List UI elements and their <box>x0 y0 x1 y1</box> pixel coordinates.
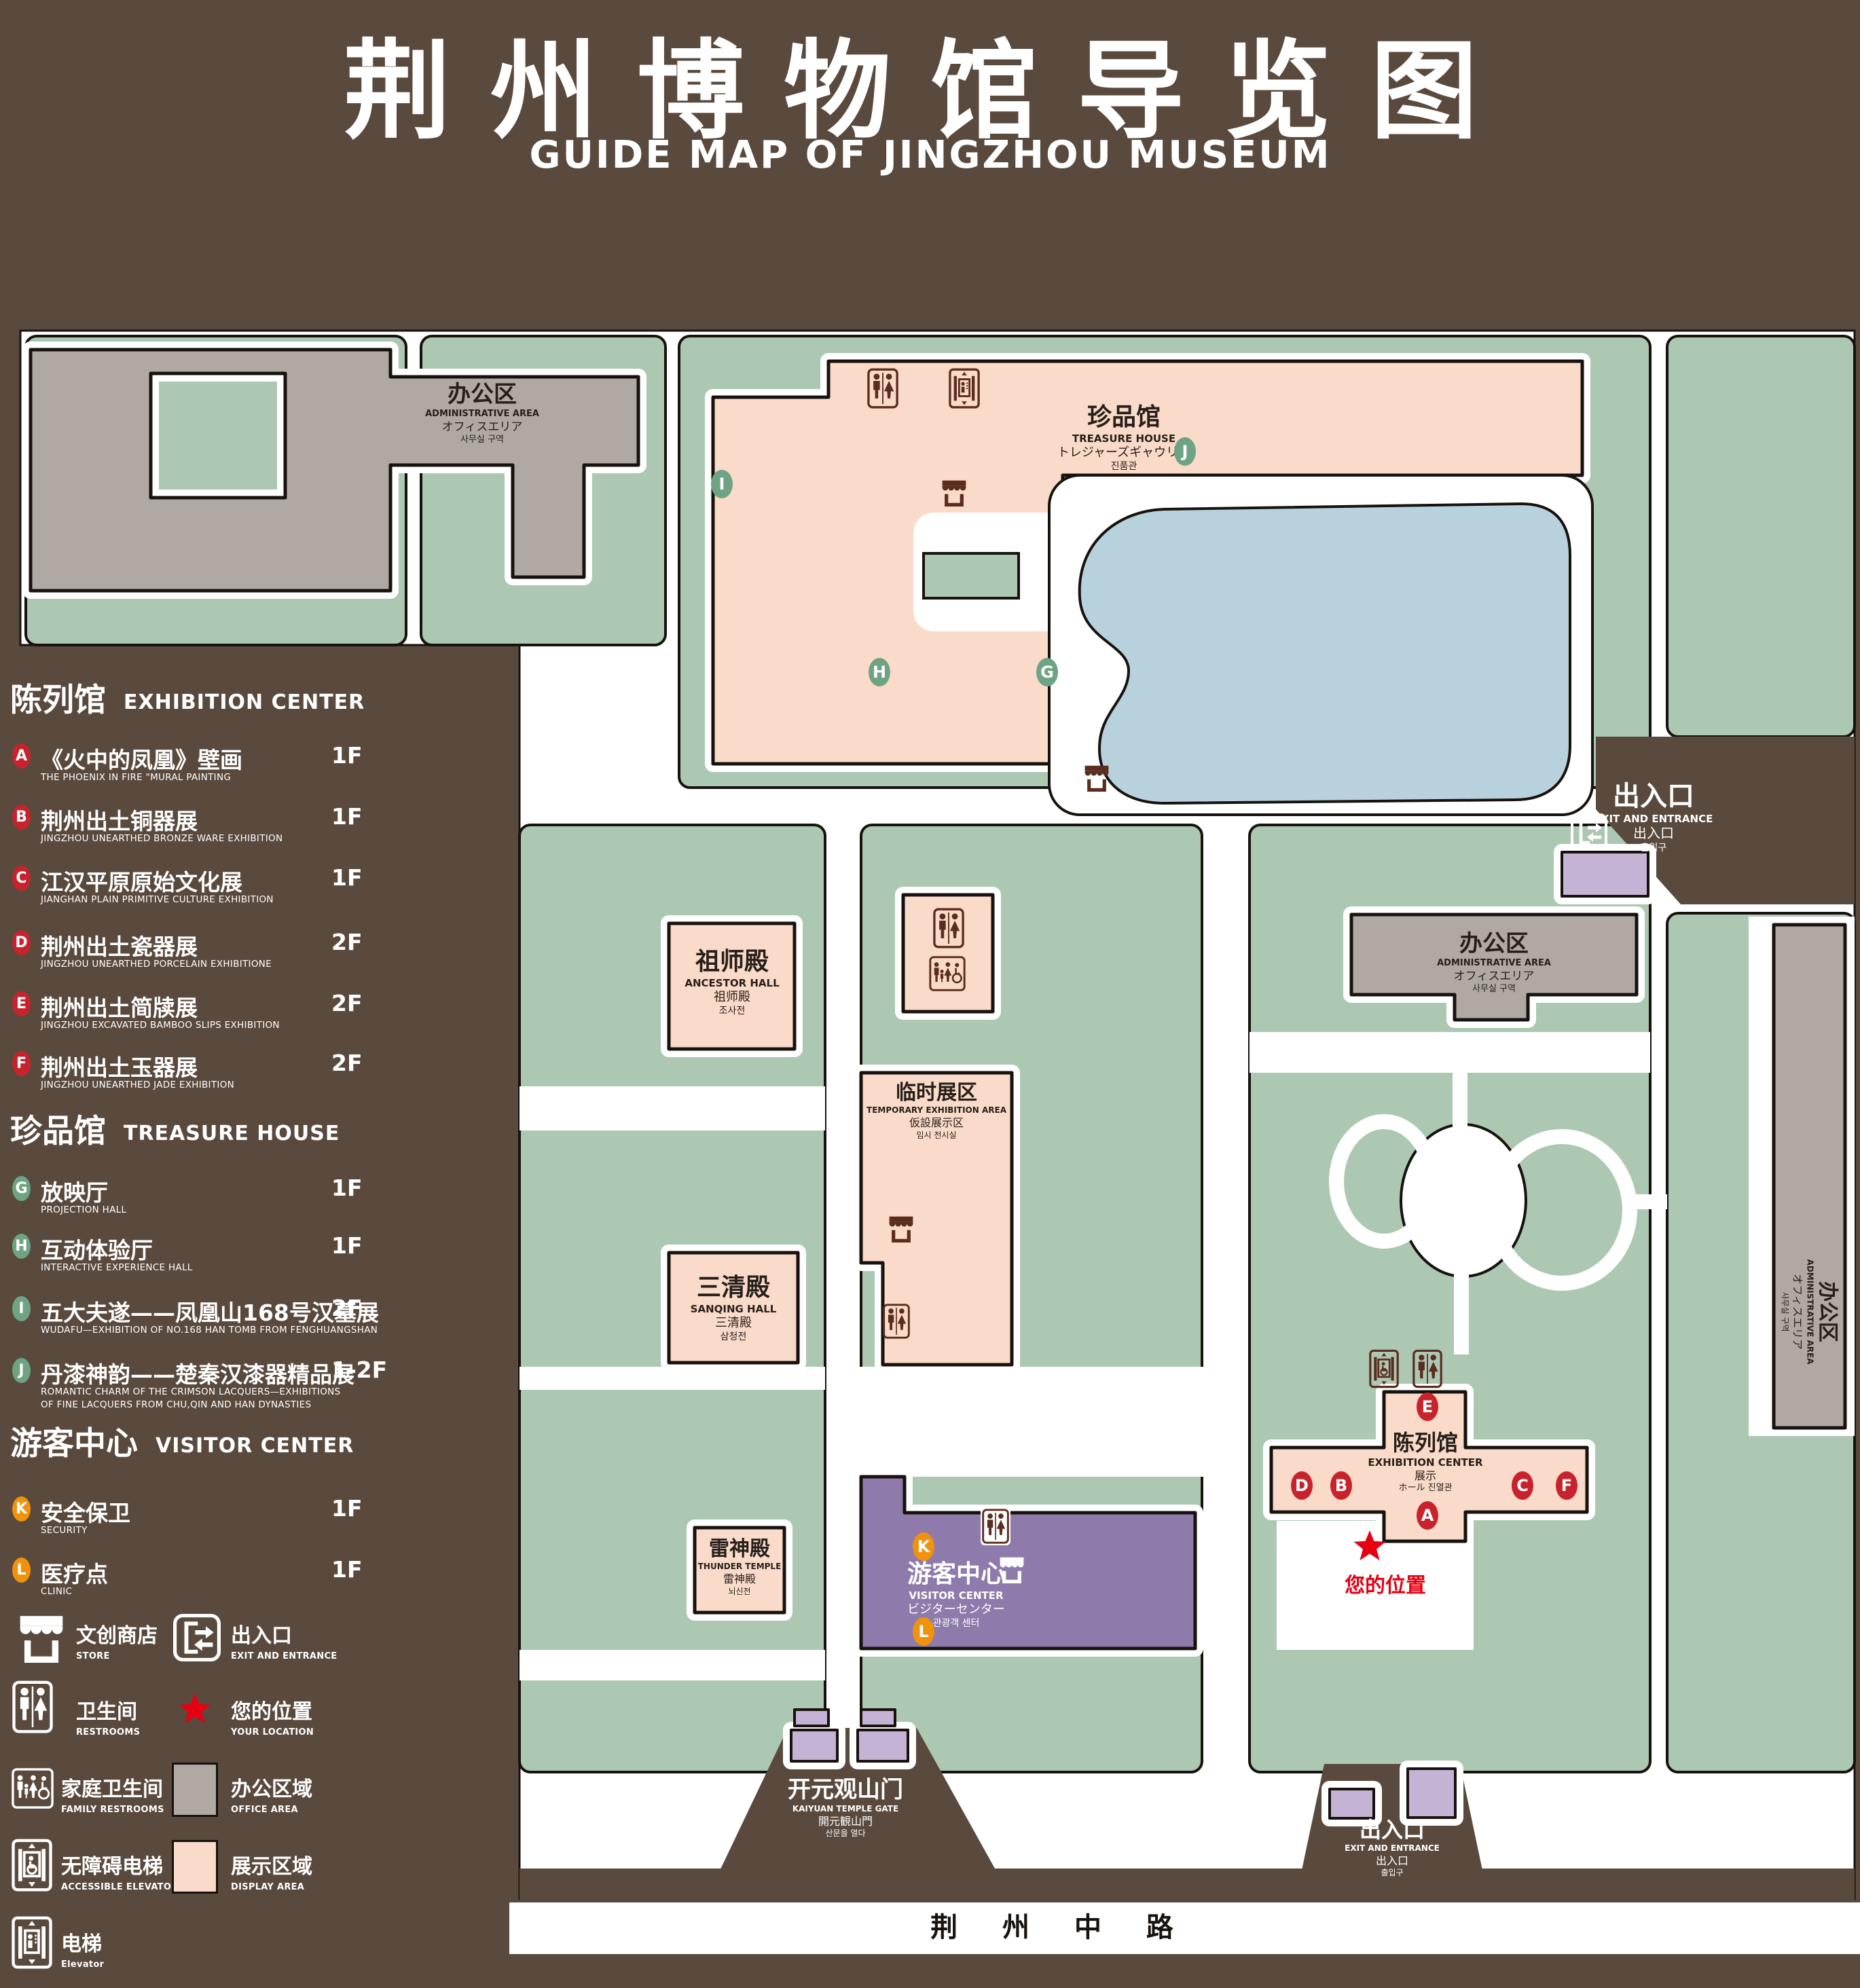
label-sanqing-hall: 三清殿 SANQING HALL 三清殿 삼청전 <box>691 1275 777 1342</box>
map-marker-F: F <box>1556 1471 1578 1500</box>
legend-heading-treasure-house: 珍品馆 TREASURE HOUSE <box>10 1116 340 1147</box>
map-marker-J: J <box>1174 437 1196 466</box>
legend-heading-visitor-center: 游客中心 VISITOR CENTER <box>10 1428 354 1460</box>
marker-badge-L: L <box>12 1558 31 1583</box>
marker-badge-C: C <box>12 866 31 891</box>
marker-badge-B: B <box>12 805 31 830</box>
gate-post-left <box>795 1710 828 1726</box>
administrative-area-northwest <box>31 350 638 591</box>
exit-icon <box>173 1611 221 1667</box>
lake-peninsula <box>924 553 1019 598</box>
marker-badge-F: F <box>12 1051 31 1076</box>
legend-store: 文创商店 STORE <box>76 1619 158 1661</box>
store-icon <box>15 1614 68 1665</box>
marker-badge-G: G <box>12 1176 31 1201</box>
gate-post-right <box>861 1710 895 1726</box>
office-area-swatch <box>172 1763 218 1817</box>
legend-accessible-elevator: 无障碍电梯 ACCESSIBLE ELEVATOR <box>61 1849 179 1892</box>
lake-pond <box>1080 504 1570 803</box>
marker-badge-A: A <box>12 743 31 769</box>
label-administrative-east: 办公区 ADMINISTRATIVE AREA オフィスエリア 사무실 구역 <box>1437 932 1551 994</box>
map-marker-H: H <box>869 658 890 686</box>
map-marker-D: D <box>1291 1471 1313 1500</box>
marker-badge-H: H <box>12 1234 31 1259</box>
legend-item-G: G 放映厅 1F PROJECTION HALL <box>12 1176 420 1238</box>
legend-office-area: 办公区域 OFFICE AREA <box>231 1772 312 1815</box>
legend-display-area: 展示区域 DISPLAY AREA <box>231 1849 312 1892</box>
south-entrance-block-left <box>1330 1789 1374 1818</box>
legend-elevator: 电梯 Elevator <box>61 1927 104 1970</box>
label-kaiyuan-gate: 开元观山门 KAIYUAN TEMPLE GATE 開元観山門 산문을 열다 <box>788 1778 903 1838</box>
label-northeast-exit: 出入口 EXIT AND ENTRANCE 出入口 출입구 <box>1594 782 1713 853</box>
northeast-entrance-block <box>1562 852 1648 896</box>
marker-badge-I: I <box>12 1296 31 1321</box>
label-jingzhou-road: 荆 州 中 路 <box>930 1905 1191 1945</box>
label-exhibition-center: 陈列馆 EXHIBITION CENTER 展示 ホール 진열관 <box>1368 1431 1482 1493</box>
label-administrative-nw: 办公区 ADMINISTRATIVE AREA オフィスエリア 사무실 구역 <box>425 382 539 445</box>
legend-family-restrooms: 家庭卫生间 FAMILY RESTROOMS <box>61 1772 164 1815</box>
location-star-icon <box>179 1693 211 1727</box>
legend-item-K: K 安全保卫 1F SECURITY <box>12 1496 420 1559</box>
map-marker-B: B <box>1330 1471 1352 1500</box>
display-area-swatch <box>172 1840 218 1894</box>
label-treasure-house: 珍品馆 TREASURE HOUSE トレジャーズギャウリー 진품관 <box>1057 405 1190 472</box>
map-marker-I: I <box>711 470 733 498</box>
gate-pillar-right <box>858 1730 908 1761</box>
legend-heading-exhibition-center: 陈列馆 EXHIBITION CENTER <box>10 684 365 716</box>
label-temporary-exhibition: 临时展区 TEMPORARY EXHIBITION AREA 仮設展示区 임시 … <box>867 1082 1006 1140</box>
legend-item-D: D 荆州出土瓷器展 2F JINGZHOU UNEARTHED PORCELAI… <box>12 930 420 993</box>
label-ancestor-hall: 祖师殿 ANCESTOR HALL 祖师殿 조사전 <box>685 949 779 1016</box>
marker-badge-E: E <box>12 991 31 1016</box>
legend-item-A: A 《火中的凤凰》壁画 1F THE PHOENIX IN FIRE "MURA… <box>12 743 420 806</box>
restrooms-icon <box>12 1677 53 1739</box>
legend-your-location: 您的位置 YOUR LOCATION <box>231 1695 314 1737</box>
legend-item-C: C 江汉平原原始文化展 1F JIANGHAN PLAIN PRIMITIVE … <box>12 866 420 928</box>
map-marker-K: K <box>913 1532 934 1561</box>
map-marker-C: C <box>1512 1471 1533 1500</box>
legend-item-E: E 荆州出土简牍展 2F JINGZHOU EXCAVATED BAMBOO S… <box>12 991 420 1054</box>
label-your-location: 您的位置 <box>1345 1568 1426 1598</box>
marker-badge-K: K <box>12 1496 31 1522</box>
map-marker-A: A <box>1417 1501 1438 1530</box>
family-restrooms-icon <box>12 1761 54 1819</box>
marker-badge-D: D <box>12 930 31 955</box>
south-entrance-block-right <box>1408 1769 1455 1818</box>
legend-item-J: J 丹漆神韵——楚秦汉漆器精品展 1-2F ROMANTIC CHARM OF … <box>12 1358 420 1420</box>
legend-item-F: F 荆州出土玉器展 2F JINGZHOU UNEARTHED JADE EXH… <box>12 1051 420 1113</box>
restroom-building <box>903 895 993 1012</box>
guide-map-page: 荆州博物馆导览图 GUIDE MAP OF JINGZHOU MUSEUM <box>0 0 1860 1988</box>
legend-exit: 出入口 EXIT AND ENTRANCE <box>231 1619 338 1661</box>
lawn-northeast <box>1667 336 1855 737</box>
accessible-elevator-icon <box>12 1837 52 1896</box>
legend-item-B: B 荆州出土铜器展 1F JINGZHOU UNEARTHED BRONZE W… <box>12 805 420 867</box>
label-thunder-temple: 雷神殿 THUNDER TEMPLE 雷神殿 뇌신전 <box>698 1539 782 1596</box>
map-marker-E: E <box>1417 1393 1438 1421</box>
map-marker-L: L <box>913 1617 934 1646</box>
legend-restrooms: 卫生间 RESTROOMS <box>76 1695 140 1737</box>
elevator-icon <box>12 1915 52 1973</box>
gate-pillar-left <box>791 1730 837 1761</box>
label-administrative-strip: 办公区 ADMINISTRATIVE AREA オフィスエリア 사무실 구역 <box>1781 1259 1838 1365</box>
marker-badge-J: J <box>12 1358 31 1383</box>
label-south-exit: 出入口 EXIT AND ENTRANCE 出入口 출입구 <box>1345 1818 1440 1877</box>
legend-item-H: H 互动体验厅 1F INTERACTIVE EXPERIENCE HALL <box>12 1234 420 1296</box>
map-marker-G: G <box>1036 658 1058 686</box>
legend-item-I: I 五大夫遂——凤凰山168号汉墓展 2F WUDAFU—EXHIBITION … <box>12 1296 420 1359</box>
